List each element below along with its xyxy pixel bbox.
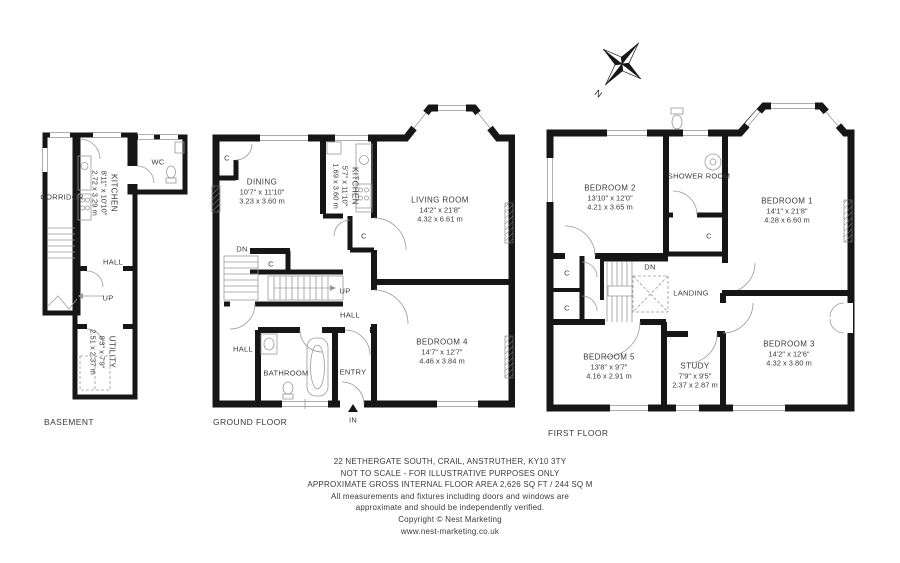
gf-hall-label-2: HALL	[233, 345, 253, 354]
room-label-utility: UTILITY 8'3" x 7'9" 2.51 x 2.37 m	[88, 329, 117, 374]
room-label-study: STUDY 7'9" x 9'5" 2.37 x 2.87 m	[672, 362, 717, 391]
room-label-bedroom-5: BEDROOM 5 13'8" x 9'7" 4.16 x 2.91 m	[583, 353, 635, 382]
room-label-gf-kitchen: KITCHEN 5'7" x 11'10" 1.69 x 3.60 m	[331, 163, 360, 208]
footer-website: www.nest-marketing.co.uk	[0, 526, 900, 538]
gf-dn-label: DN	[236, 245, 247, 254]
basement-hall-label: HALL	[103, 258, 123, 267]
bathroom-label: BATHROOM	[263, 369, 308, 378]
footer-not-to-scale: NOT TO SCALE - FOR ILLUSTRATIVE PURPOSES…	[0, 468, 900, 480]
room-label-bedroom-4: BEDROOM 4 14'7" x 12'7" 4.46 x 3.84 m	[416, 338, 468, 367]
gf-up-label: UP	[339, 287, 350, 296]
compass-rose: N	[584, 28, 658, 104]
room-label-bedroom-1: BEDROOM 1 14'1" x 21'8" 4.28 x 6.60 m	[761, 197, 813, 226]
ff-closet-label-1: C	[706, 232, 712, 241]
room-label-bedroom-2: BEDROOM 2 13'10" x 12'0" 4.21 x 3.65 m	[584, 184, 636, 213]
room-label-dining: DINING 10'7" x 11'10" 3.23 x 3.60 m	[239, 178, 284, 207]
landing-label: LANDING	[673, 289, 708, 298]
footer-address: 22 NETHERGATE SOUTH, CRAIL, ANSTRUTHER, …	[0, 456, 900, 468]
footer-disclaimer-line-2: approximate and should be independently …	[0, 502, 900, 514]
gf-closet-label-1: C	[224, 154, 230, 163]
footer-disclaimer: 22 NETHERGATE SOUTH, CRAIL, ANSTRUTHER, …	[0, 456, 900, 537]
room-label-bedroom-3: BEDROOM 3 14'2" x 12'6" 4.32 x 3.80 m	[763, 340, 815, 369]
gf-closet-label-3: C	[268, 260, 274, 269]
floorplan-page: { "compass": { "north": "N" }, "labels":…	[0, 0, 900, 563]
footer-floor-area: APPROXIMATE GROSS INTERNAL FLOOR AREA 2,…	[0, 479, 900, 491]
corridor-label: CORRIDOR	[40, 193, 83, 202]
footer-disclaimer-line-1: All measurements and fixtures including …	[0, 491, 900, 503]
in-label: IN	[349, 416, 357, 425]
basement-up-label: UP	[102, 294, 113, 303]
ff-dn-label: DN	[644, 263, 655, 272]
wc-label: WC	[151, 158, 164, 167]
gf-hall-label-1: HALL	[340, 311, 360, 320]
footer-copyright: Copyright © Nest Marketing	[0, 514, 900, 526]
ff-closet-label-2: C	[564, 269, 570, 278]
first-floor-title: FIRST FLOOR	[548, 428, 608, 438]
room-label-basement-kitchen: KITCHEN 8'11" x 10'10" 2.72 x 3.29 m	[90, 170, 119, 215]
shower-room-label: SHOWER ROOM	[668, 172, 730, 181]
basement-title: BASEMENT	[44, 417, 94, 427]
ff-closet-label-3: C	[564, 304, 570, 313]
room-label-living-room: LIVING ROOM 14'2" x 21'8" 4.32 x 6.61 m	[411, 196, 469, 225]
ground-floor-title: GROUND FLOOR	[213, 417, 287, 427]
gf-closet-label-2: C	[361, 232, 367, 241]
compass-north-label: N	[593, 88, 604, 100]
entry-label: ENTRY	[340, 368, 367, 377]
